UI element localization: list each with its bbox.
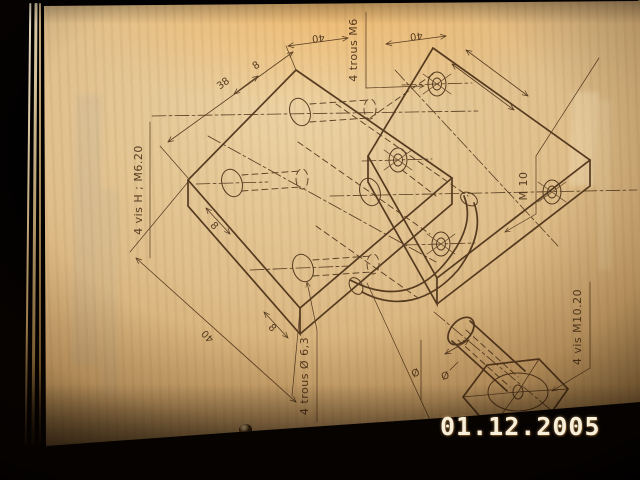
thread-note: M 10: [517, 172, 530, 201]
curved-link: [346, 189, 479, 301]
paper-stack-edge: [39, 3, 41, 445]
holes-top-note: 4 trous M6: [347, 18, 360, 82]
punch-hole-left: [239, 424, 252, 435]
right-plate: [368, 48, 590, 304]
camera-date-stamp: 01.12.2005: [440, 412, 601, 441]
dim-40-top-right-label: 40: [409, 29, 423, 41]
dim-8-bottom-label: 8: [266, 322, 278, 334]
flanged-holes: [384, 72, 566, 256]
diameter-symbol: Ø: [410, 366, 422, 380]
screws-left-note: 4 vis H ; M6.20: [132, 145, 145, 235]
paper-sheet: 38 8 40 40 4 trous M6 4 vis H ; M6.20 8 …: [0, 0, 640, 480]
hidden-lines: [242, 74, 468, 298]
diameter-symbol: Ø: [440, 369, 451, 383]
holes-bottom-note: 4 trous Ø 6,3: [298, 337, 311, 415]
paper-stack-edge: [31, 3, 37, 445]
dim-40-bottom-label: 40: [200, 327, 217, 344]
paper-stack-edge: [25, 3, 32, 445]
dim-40-top-left-label: 40: [311, 31, 325, 43]
technical-drawing: 38 8 40 40 4 trous M6 4 vis H ; M6.20 8 …: [0, 0, 640, 480]
dim-38-label: 38: [215, 76, 232, 92]
punch-hole-right: [410, 421, 423, 432]
photo-frame: 38 8 40 40 4 trous M6 4 vis H ; M6.20 8 …: [0, 0, 640, 480]
dim-8-top-label: 8: [251, 60, 263, 73]
screws-right-note: 4 vis M10.20: [571, 289, 584, 365]
